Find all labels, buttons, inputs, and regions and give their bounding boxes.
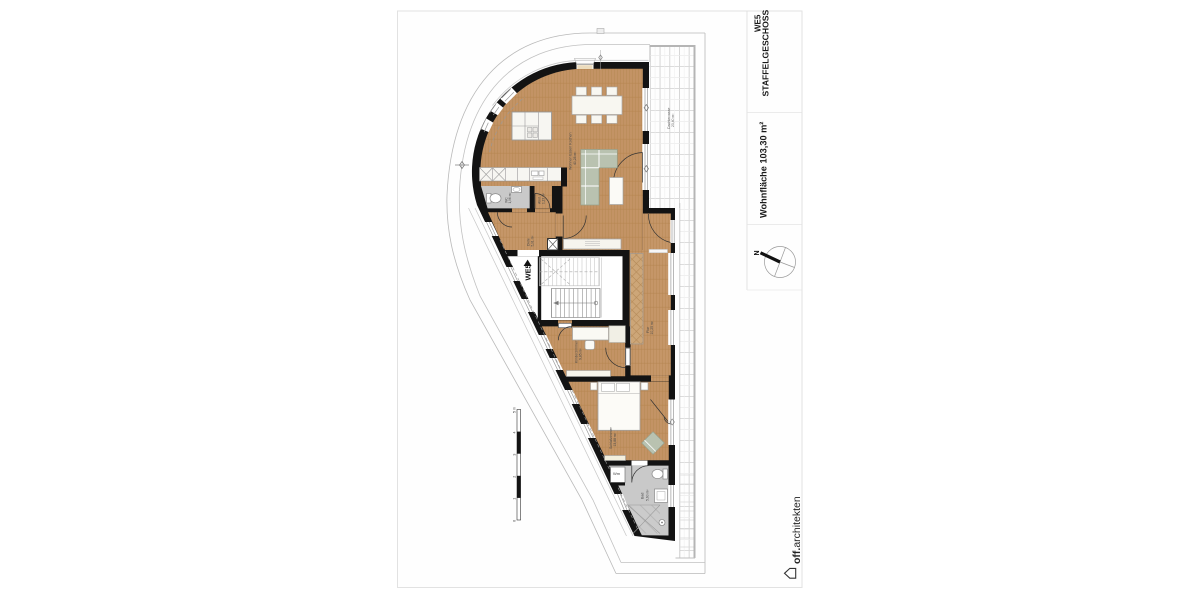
- svg-text:5 m: 5 m: [513, 407, 517, 413]
- svg-text:1: 1: [513, 498, 517, 500]
- svg-text:Wohnen Essen Kochen: Wohnen Essen Kochen: [569, 133, 573, 171]
- svg-text:2: 2: [513, 476, 517, 478]
- svg-text:Bad: Bad: [641, 493, 645, 499]
- svg-text:STAFFELGESCHOSS: STAFFELGESCHOSS: [761, 9, 771, 96]
- svg-text:1,13 m²: 1,13 m²: [542, 193, 546, 204]
- svg-text:1,96 m²: 1,96 m²: [508, 193, 512, 204]
- svg-text:10,25 m²: 10,25 m²: [650, 320, 654, 334]
- svg-text:0: 0: [513, 520, 517, 522]
- svg-text:WE5: WE5: [524, 264, 533, 280]
- svg-text:3: 3: [513, 454, 517, 456]
- svg-text:5,60 m²: 5,60 m²: [646, 489, 650, 501]
- svg-text:4: 4: [513, 432, 517, 434]
- svg-text:Wohnfläche 103,30 m²: Wohnfläche 103,30 m²: [759, 122, 769, 218]
- svg-text:9,85 m²: 9,85 m²: [579, 348, 583, 360]
- svg-text:off.architekten: off.architekten: [791, 496, 803, 564]
- svg-text:Wm: Wm: [613, 471, 621, 476]
- svg-text:5,91 m²: 5,91 m²: [531, 236, 535, 247]
- svg-text:40,28 m²: 40,28 m²: [573, 151, 577, 165]
- svg-text:N: N: [754, 250, 761, 255]
- svg-text:23,40 m²: 23,40 m²: [671, 113, 675, 127]
- svg-text:13,88 m²: 13,88 m²: [613, 432, 617, 446]
